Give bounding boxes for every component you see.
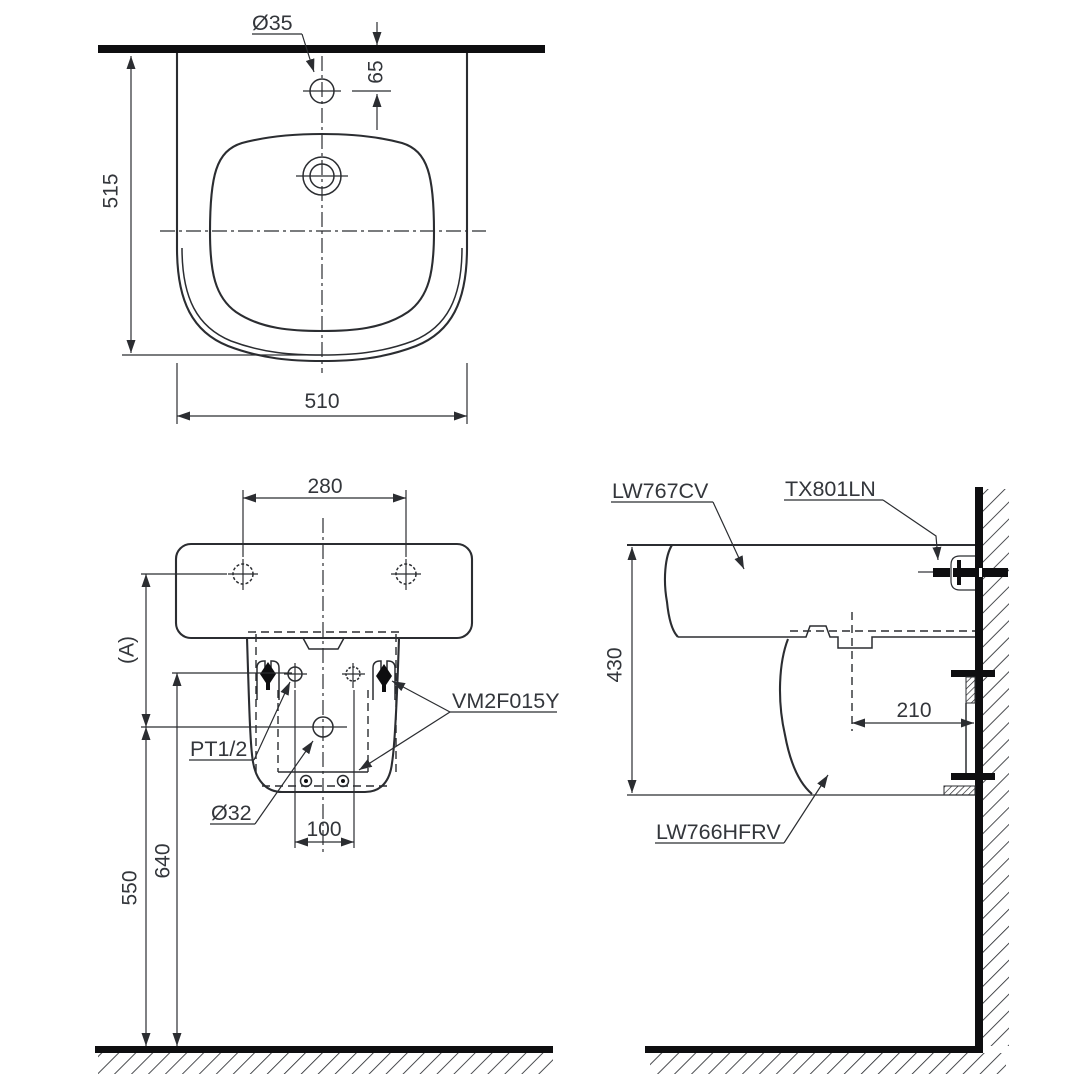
valve-model-leader (883, 500, 938, 560)
lavatory-model-leader (713, 502, 744, 569)
pedestal-screw-left (301, 776, 312, 787)
pedestal-screw-right (338, 776, 349, 787)
supply-hole-right (342, 663, 365, 688)
anchor-bolt-left-symbol (260, 662, 276, 690)
wall-bolt-hole-left (228, 559, 258, 590)
sink-front-outline (176, 544, 472, 638)
dim-100-label: 100 (306, 818, 341, 841)
lavatory-installation-diagram: Ø35 65 515 510 (0, 0, 1090, 1090)
fixing-kit-label: VM2F015Y (452, 689, 560, 713)
front-view: 280 (A) 640 550 100 PT1/2 Ø32 VM2F015Y (95, 475, 560, 1074)
valve-flange (957, 560, 961, 585)
front-floor-hatch (98, 1053, 553, 1074)
supply-thread-label: PT1/2 (190, 737, 247, 761)
shroud-profile (780, 639, 812, 794)
side-floor-line (645, 1046, 983, 1053)
sink-front-profile (665, 545, 678, 637)
anchor-bolt-right-symbol (376, 664, 392, 692)
technical-drawing: Ø35 65 515 510 (0, 0, 1090, 1090)
dim-515-label: 515 (100, 173, 123, 208)
pipe-lower-flange (951, 773, 995, 780)
dim-640-label: 640 (152, 843, 175, 878)
fixing-kit-leader-lower (359, 712, 450, 770)
dim-510-label: 510 (304, 390, 339, 413)
pipe-hatched-block (966, 677, 975, 703)
supply-thread-leader (254, 682, 290, 760)
drain-dia-label: Ø32 (211, 801, 252, 825)
top-view: Ø35 65 515 510 (98, 11, 545, 424)
top-view-wall-line (98, 45, 545, 53)
dim-430-label: 430 (604, 647, 627, 682)
front-floor-line (95, 1046, 553, 1053)
side-view: 430 210 LW767CV TX801LN (604, 477, 1009, 1074)
valve-gap-2 (979, 568, 982, 577)
pipe-bottom-flange (944, 786, 975, 795)
dim-A-label: (A) (116, 636, 139, 664)
shroud-model-label: LW766HFRV (656, 820, 781, 844)
dim-65-label: 65 (365, 60, 388, 83)
pipe-upper-flange (951, 670, 995, 677)
dim-550-label: 550 (119, 870, 142, 905)
dim-210-label: 210 (896, 699, 931, 722)
supply-hole-left (284, 663, 307, 688)
valve-body (933, 568, 1008, 577)
drain-dia-leader (255, 741, 313, 824)
lavatory-model-label: LW767CV (612, 479, 709, 503)
sink-bottom-profile (678, 626, 975, 648)
dim-280-label: 280 (307, 475, 342, 498)
shroud-model-leader (784, 775, 828, 843)
valve-model-label: TX801LN (785, 477, 876, 501)
side-floor-hatch (650, 1053, 1006, 1074)
fixing-kit-leader-upper (392, 681, 450, 712)
faucet-dia-label: Ø35 (252, 11, 293, 35)
wall-bolt-hole-right (391, 559, 421, 590)
